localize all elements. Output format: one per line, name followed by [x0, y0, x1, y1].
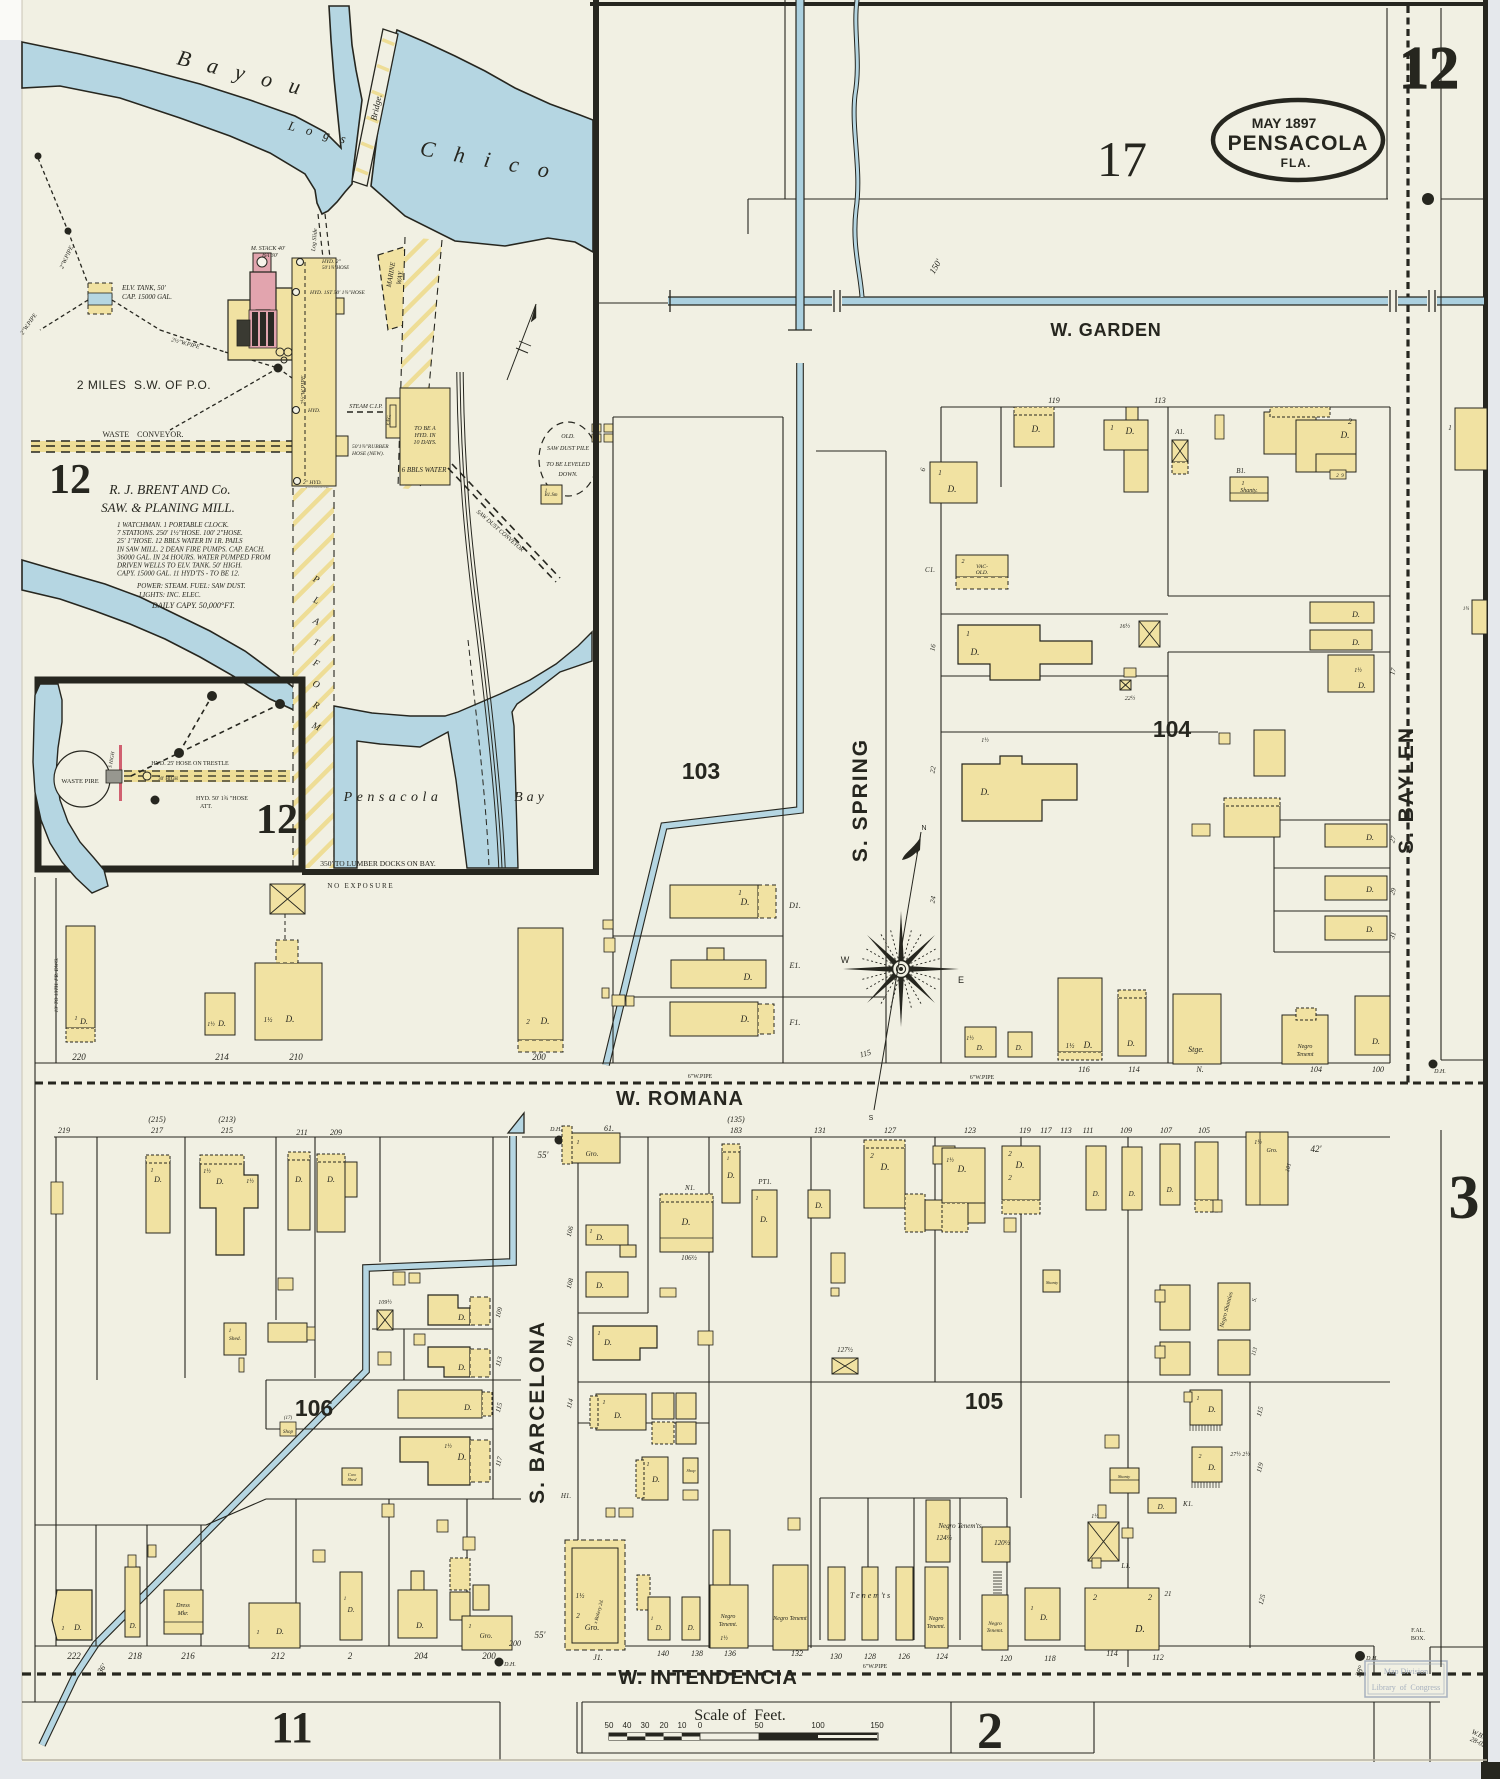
svg-text:1: 1 — [756, 1196, 759, 1202]
svg-text:204: 204 — [414, 1651, 428, 1661]
svg-text:50: 50 — [755, 1721, 764, 1730]
svg-text:200: 200 — [532, 1052, 546, 1062]
svg-text:1½: 1½ — [264, 1016, 274, 1024]
svg-text:2: 2 — [526, 1018, 530, 1026]
svg-text:219: 219 — [58, 1126, 70, 1135]
svg-text:105: 105 — [1198, 1126, 1210, 1135]
svg-text:120½: 120½ — [994, 1539, 1011, 1547]
svg-text:D.: D. — [726, 1171, 735, 1180]
svg-text:D.: D. — [1365, 885, 1374, 894]
svg-text:1: 1 — [590, 1229, 593, 1235]
svg-text:124½: 124½ — [936, 1534, 953, 1542]
svg-text:1: 1 — [738, 889, 742, 897]
svg-text:1: 1 — [1110, 424, 1114, 432]
svg-text:120: 120 — [1000, 1654, 1012, 1663]
svg-text:D.: D. — [1015, 1044, 1023, 1052]
svg-text:Gro.: Gro. — [586, 1150, 599, 1158]
svg-text:6"W.PIPE: 6"W.PIPE — [688, 1074, 713, 1080]
svg-text:36000 GAL. IN 24 HOURS. WATER: 36000 GAL. IN 24 HOURS. WATER PUMPED FRO… — [116, 553, 272, 561]
svg-text:D.: D. — [1039, 1613, 1048, 1622]
svg-text:D.: D. — [129, 1622, 137, 1630]
svg-text:E1.: E1. — [789, 961, 801, 970]
svg-text:R. J. BRENT AND Co.: R. J. BRENT AND Co. — [108, 482, 230, 497]
svg-text:W. ROMANA: W. ROMANA — [616, 1088, 744, 1110]
svg-text:1 WATCHMAN. 1 PORTABLE CLOCK.: 1 WATCHMAN. 1 PORTABLE CLOCK. — [117, 521, 229, 529]
svg-text:D.: D. — [740, 1014, 750, 1024]
svg-text:D.: D. — [1083, 1040, 1093, 1050]
svg-text:D.: D. — [1351, 638, 1360, 647]
svg-text:S: S — [869, 1115, 874, 1122]
svg-text:MAY 1897: MAY 1897 — [1252, 115, 1317, 131]
svg-text:61.: 61. — [604, 1124, 614, 1133]
svg-text:Map Division: Map Division — [1384, 1667, 1428, 1676]
svg-text:183: 183 — [730, 1126, 742, 1135]
svg-text:F1.: F1. — [789, 1018, 801, 1027]
svg-text:D.: D. — [613, 1411, 622, 1420]
svg-text:1: 1 — [1242, 481, 1245, 487]
svg-text:150: 150 — [870, 1721, 884, 1730]
svg-text:Shop: Shop — [283, 1430, 294, 1435]
svg-text:W: W — [841, 955, 850, 965]
svg-text:200: 200 — [482, 1651, 496, 1661]
svg-text:1: 1 — [229, 1329, 232, 1334]
svg-text:1½: 1½ — [207, 1021, 215, 1028]
svg-text:K1.: K1. — [1182, 1500, 1193, 1508]
svg-text:350′ TO LUMBER DOCKS ON BAY.: 350′ TO LUMBER DOCKS ON BAY. — [320, 859, 436, 868]
svg-text:130: 130 — [830, 1652, 842, 1661]
svg-text:D.: D. — [285, 1014, 295, 1024]
svg-text:DRIVEN WELLS TO ELV. TANK. 50′: DRIVEN WELLS TO ELV. TANK. 50′ HIGH. — [116, 562, 242, 570]
svg-text:2: 2 — [1008, 1174, 1012, 1182]
svg-text:D.: D. — [1365, 925, 1374, 934]
svg-text:220: 220 — [72, 1052, 86, 1062]
svg-text:118: 118 — [1044, 1654, 1055, 1663]
svg-text:SAW DUST PILE: SAW DUST PILE — [547, 446, 589, 452]
svg-text:218: 218 — [128, 1651, 142, 1661]
svg-text:2: 2 — [1199, 1454, 1202, 1460]
svg-text:D.H.: D.H. — [1365, 1656, 1378, 1662]
svg-text:BOX.: BOX. — [1411, 1636, 1426, 1642]
svg-text:H1.: H1. — [560, 1492, 572, 1500]
svg-text:13' TO 13TH. FR. DWG.: 13' TO 13TH. FR. DWG. — [54, 957, 60, 1012]
svg-text:1: 1 — [647, 1462, 650, 1468]
svg-text:10: 10 — [678, 1721, 687, 1730]
svg-text:106½: 106½ — [681, 1254, 698, 1262]
svg-text:D.: D. — [687, 1624, 695, 1632]
svg-text:6 BBLS WATER: 6 BBLS WATER — [402, 466, 447, 474]
svg-text:1: 1 — [938, 469, 942, 477]
svg-text:S. BAYLEN: S. BAYLEN — [1395, 726, 1418, 854]
svg-text:PT1.: PT1. — [757, 1178, 772, 1186]
svg-text:Mkr.: Mkr. — [177, 1611, 189, 1617]
svg-text:L1.: L1. — [1120, 1562, 1130, 1570]
svg-text:2: 2 — [1093, 1593, 1097, 1602]
svg-text:HOSE (NEW).: HOSE (NEW). — [351, 450, 384, 457]
svg-text:55': 55' — [538, 1150, 550, 1160]
svg-text:109½: 109½ — [378, 1299, 392, 1306]
svg-text:1½: 1½ — [1354, 667, 1362, 674]
svg-text:10 DAYS.: 10 DAYS. — [413, 440, 436, 446]
svg-text:27½ 2½: 27½ 2½ — [1230, 1451, 1250, 1458]
svg-text:217: 217 — [151, 1126, 164, 1135]
svg-text:DOWN.: DOWN. — [557, 472, 577, 478]
svg-text:Negro: Negro — [1297, 1044, 1313, 1050]
svg-text:D.: D. — [595, 1233, 604, 1242]
svg-text:55': 55' — [535, 1630, 547, 1640]
svg-text:D.: D. — [463, 1403, 472, 1412]
svg-text:Negro Tenem′ts: Negro Tenem′ts — [937, 1522, 981, 1530]
svg-text:109: 109 — [1120, 1126, 1132, 1135]
svg-text:1: 1 — [469, 1624, 472, 1630]
svg-text:3: 3 — [1449, 1164, 1480, 1232]
svg-text:2: 2 — [977, 1703, 1003, 1760]
svg-text:2" HYD.: 2" HYD. — [303, 480, 322, 486]
svg-text:17: 17 — [1097, 131, 1147, 187]
svg-text:SAW. & PLANING MILL.: SAW. & PLANING MILL. — [101, 500, 235, 515]
svg-text:104: 104 — [1153, 716, 1192, 742]
svg-text:1: 1 — [603, 1400, 606, 1406]
svg-text:TO BE A: TO BE A — [414, 426, 436, 432]
svg-text:Tenemt.: Tenemt. — [927, 1624, 946, 1630]
svg-text:WASTE CONVEYOR.: WASTE CONVEYOR. — [102, 430, 183, 439]
svg-text:Shed: Shed — [348, 1477, 357, 1482]
svg-text:1½: 1½ — [981, 737, 989, 744]
svg-text:D.: D. — [957, 1164, 967, 1174]
svg-text:210: 210 — [289, 1052, 303, 1062]
svg-text:132: 132 — [791, 1649, 803, 1658]
svg-text:116: 116 — [1078, 1065, 1089, 1074]
svg-text:1½: 1½ — [1254, 1139, 1262, 1146]
svg-text:N O E X P O S U R E: N O E X P O S U R E — [327, 882, 392, 890]
svg-text:111: 111 — [1083, 1126, 1094, 1135]
svg-text:1: 1 — [651, 1617, 654, 1622]
svg-text:Bay: Bay — [514, 790, 548, 805]
svg-text:D.: D. — [947, 484, 957, 494]
svg-text:214: 214 — [215, 1052, 229, 1062]
svg-text:D.: D. — [1125, 426, 1135, 436]
svg-text:1: 1 — [545, 489, 548, 494]
svg-text:D.: D. — [1128, 1190, 1136, 1198]
svg-text:126: 126 — [898, 1652, 910, 1661]
svg-text:42': 42' — [1311, 1144, 1323, 1154]
svg-text:100: 100 — [1372, 1065, 1384, 1074]
svg-text:1½: 1½ — [1066, 1042, 1076, 1050]
svg-text:1½: 1½ — [720, 1635, 728, 1642]
svg-text:11: 11 — [271, 1703, 313, 1752]
svg-text:2: 2 — [1148, 1593, 1152, 1602]
svg-text:138: 138 — [691, 1649, 703, 1658]
svg-text:D.: D. — [759, 1215, 768, 1224]
svg-text:HYD. IN: HYD. IN — [413, 433, 436, 439]
svg-text:20: 20 — [660, 1721, 669, 1730]
svg-text:136: 136 — [724, 1649, 736, 1658]
svg-text:D.H.: D.H. — [503, 1662, 516, 1668]
svg-text:Negro: Negro — [987, 1621, 1002, 1627]
svg-text:7 STATIONS. 250′ 1½"HOSE. 100′: 7 STATIONS. 250′ 1½"HOSE. 100′ 2"HOSE. — [117, 529, 243, 537]
svg-text:1½: 1½ — [444, 1443, 452, 1450]
svg-text:D.: D. — [1126, 1039, 1135, 1048]
svg-text:Stge.: Stge. — [1188, 1045, 1204, 1054]
svg-text:W. GARDEN: W. GARDEN — [1050, 320, 1161, 340]
svg-text:50: 50 — [605, 1721, 614, 1730]
svg-text:124: 124 — [936, 1652, 948, 1661]
svg-text:D.: D. — [457, 1363, 466, 1372]
svg-text:D.: D. — [681, 1217, 691, 1227]
svg-text:117: 117 — [1040, 1126, 1052, 1135]
svg-text:104: 104 — [1310, 1065, 1322, 1074]
svg-text:CAPY. 15000 GAL. 11 HYD′TS - T: CAPY. 15000 GAL. 11 HYD′TS - TO BE 12. — [117, 570, 240, 578]
svg-text:Shed.: Shed. — [229, 1336, 241, 1342]
svg-text:Negro Tenemt: Negro Tenemt — [772, 1616, 807, 1622]
svg-text:D.: D. — [415, 1621, 424, 1630]
svg-text:(17): (17) — [284, 1416, 293, 1421]
svg-text:LIGHTS: INC. ELEC.: LIGHTS: INC. ELEC. — [138, 591, 201, 599]
svg-text:112: 112 — [1152, 1653, 1163, 1662]
svg-text:D.: D. — [976, 1044, 984, 1052]
svg-text:Library of Congress: Library of Congress — [1372, 1683, 1440, 1692]
svg-text:D.: D. — [275, 1627, 284, 1636]
svg-text:N: N — [921, 825, 926, 832]
svg-text:127½: 127½ — [837, 1346, 854, 1354]
svg-text:Tenemt: Tenemt — [1296, 1052, 1313, 1058]
svg-text:STEAM C.I.P.: STEAM C.I.P. — [349, 404, 383, 410]
svg-text:HYD.: HYD. — [307, 408, 320, 414]
svg-text:Shanty: Shanty — [1118, 1474, 1130, 1479]
svg-text:1½: 1½ — [1091, 1513, 1099, 1520]
svg-text:50′1¾"HOSE: 50′1¾"HOSE — [322, 266, 349, 271]
svg-text:30: 30 — [641, 1721, 650, 1730]
svg-text:200: 200 — [509, 1639, 521, 1648]
svg-text:209: 209 — [330, 1128, 342, 1137]
svg-text:1: 1 — [966, 630, 970, 638]
svg-text:D.: D. — [814, 1201, 823, 1210]
svg-text:FLA.: FLA. — [1281, 156, 1312, 170]
svg-text:Tenemt.: Tenemt. — [986, 1628, 1003, 1634]
svg-text:BA 30′: BA 30′ — [262, 253, 279, 259]
svg-text:215: 215 — [221, 1126, 233, 1135]
svg-text:1½: 1½ — [246, 1178, 254, 1185]
svg-text:D.: D. — [740, 897, 750, 907]
svg-text:128: 128 — [864, 1652, 876, 1661]
svg-text:D.: D. — [457, 1452, 467, 1462]
svg-text:D.: D. — [79, 1017, 88, 1026]
svg-text:M. STACK 40′: M. STACK 40′ — [250, 245, 286, 252]
svg-text:D.: D. — [1092, 1190, 1100, 1198]
svg-text:2: 2 — [962, 559, 965, 565]
svg-text:D.: D. — [1371, 1037, 1380, 1046]
svg-text:D.: D. — [1157, 1503, 1165, 1511]
svg-text:PENSACOLA: PENSACOLA — [1228, 132, 1369, 155]
svg-text:1: 1 — [75, 1016, 78, 1022]
svg-text:D.: D. — [603, 1338, 612, 1347]
svg-text:127: 127 — [884, 1126, 897, 1135]
svg-text:2: 2 — [348, 1651, 353, 1661]
svg-text:Negro: Negro — [720, 1614, 736, 1620]
svg-text:ATT.: ATT. — [200, 804, 213, 810]
svg-text:Tenemt.: Tenemt. — [719, 1622, 738, 1628]
svg-text:123: 123 — [964, 1126, 976, 1135]
svg-text:D.: D. — [73, 1623, 82, 1632]
svg-text:D.: D. — [1166, 1186, 1174, 1194]
svg-text:D1.: D1. — [788, 901, 801, 910]
svg-text:22½: 22½ — [1125, 695, 1136, 702]
svg-text:N.: N. — [1195, 1065, 1203, 1074]
svg-text:D.H.: D.H. — [549, 1127, 562, 1133]
svg-text:114: 114 — [1106, 1649, 1117, 1658]
svg-text:D.: D. — [1357, 681, 1366, 690]
svg-text:2: 2 — [870, 1152, 874, 1160]
svg-text:S. BARCELONA: S. BARCELONA — [526, 1320, 549, 1504]
svg-text:D.: D. — [1351, 610, 1360, 619]
svg-text:131: 131 — [814, 1126, 826, 1135]
svg-text:2: 2 — [1348, 417, 1352, 426]
svg-text:ELV. TANK, 50′: ELV. TANK, 50′ — [121, 284, 166, 292]
svg-text:25′ 1"HOSE. 12 BBLS WATER IN 1: 25′ 1"HOSE. 12 BBLS WATER IN 1R. PAILS — [117, 537, 243, 545]
svg-text:D.: D. — [655, 1624, 663, 1632]
svg-text:12: 12 — [256, 797, 298, 843]
svg-text:1½: 1½ — [203, 1168, 211, 1175]
svg-text:D.: D. — [326, 1175, 335, 1184]
svg-text:Shanty: Shanty — [1046, 1280, 1058, 1285]
svg-text:140: 140 — [657, 1649, 669, 1658]
svg-text:HYD. 50′ 1¾ "HOSE: HYD. 50′ 1¾ "HOSE — [196, 795, 248, 802]
svg-text:TO BE LEVELED: TO BE LEVELED — [546, 462, 590, 468]
svg-text:POWER: STEAM. FUEL: SAW DUST.: POWER: STEAM. FUEL: SAW DUST. — [136, 582, 246, 590]
svg-text:1½: 1½ — [966, 1035, 974, 1042]
svg-text:1: 1 — [598, 1331, 601, 1337]
svg-text:50′1¾"RUBBER: 50′1¾"RUBBER — [352, 444, 389, 450]
svg-text:0: 0 — [698, 1721, 703, 1730]
svg-text:113: 113 — [1154, 396, 1165, 405]
svg-text:2: 2 — [1008, 1150, 1012, 1158]
svg-text:D.: D. — [217, 1019, 226, 1028]
svg-text:WASTE PIRE: WASTE PIRE — [61, 778, 98, 785]
svg-text:D.: D. — [1134, 1624, 1145, 1635]
svg-text:C1.: C1. — [925, 566, 935, 574]
svg-text:107: 107 — [1160, 1126, 1173, 1135]
svg-text:OLD.: OLD. — [561, 434, 575, 440]
svg-text:103: 103 — [682, 758, 720, 784]
svg-text:1: 1 — [577, 1140, 580, 1146]
svg-text:D.: D. — [1031, 424, 1041, 434]
svg-text:Shanty.: Shanty. — [1240, 488, 1258, 494]
svg-text:Scale of Feet.: Scale of Feet. — [694, 1707, 786, 1724]
svg-text:W. INTENDENCIA: W. INTENDENCIA — [618, 1667, 798, 1689]
svg-text:1½: 1½ — [946, 1157, 954, 1164]
svg-text:HYD. 1ST 50′ 1¾"HOSE: HYD. 1ST 50′ 1¾"HOSE — [309, 290, 366, 296]
svg-text:2½"W.PIPE: 2½"W.PIPE — [300, 375, 307, 404]
svg-text:D.: D. — [540, 1016, 550, 1026]
svg-text:6"W.PIPE: 6"W.PIPE — [970, 1075, 995, 1081]
svg-text:216: 216 — [181, 1651, 195, 1661]
svg-text:B1.: B1. — [1236, 467, 1246, 475]
svg-text:30′ HIGH: 30′ HIGH — [158, 777, 178, 782]
svg-text:1: 1 — [151, 1168, 154, 1174]
svg-text:114: 114 — [1128, 1065, 1139, 1074]
svg-text:D.: D. — [651, 1475, 660, 1484]
svg-text:113: 113 — [1060, 1126, 1071, 1135]
svg-text:Shop: Shop — [687, 1468, 697, 1473]
svg-text:2: 2 — [576, 1612, 580, 1620]
svg-text:100: 100 — [811, 1721, 825, 1730]
svg-text:HYD. 2": HYD. 2" — [321, 259, 342, 265]
svg-text:A1.: A1. — [1174, 428, 1185, 436]
svg-text:D.: D. — [1365, 833, 1374, 842]
svg-text:CAP. 15000 GAL.: CAP. 15000 GAL. — [122, 293, 172, 301]
svg-text:D.: D. — [1207, 1463, 1216, 1472]
svg-text:21: 21 — [1165, 1590, 1172, 1598]
svg-text:119: 119 — [1048, 396, 1059, 405]
svg-text:D.: D. — [970, 647, 980, 657]
svg-text:(215): (215) — [148, 1115, 166, 1124]
svg-text:(135): (135) — [727, 1115, 745, 1124]
svg-text:105: 105 — [965, 1388, 1004, 1414]
svg-text:D.: D. — [294, 1175, 303, 1184]
svg-text:Dress: Dress — [175, 1603, 190, 1609]
svg-text:1¾: 1¾ — [1463, 607, 1470, 612]
svg-text:D.: D. — [153, 1175, 162, 1184]
svg-text:S. SPRING: S. SPRING — [849, 738, 872, 862]
svg-text:D.: D. — [457, 1313, 466, 1322]
svg-text:Negro: Negro — [928, 1616, 944, 1622]
svg-text:F.AL.: F.AL. — [1411, 1628, 1425, 1634]
svg-text:1: 1 — [62, 1626, 65, 1632]
svg-text:E: E — [958, 975, 964, 985]
svg-text:D.: D. — [215, 1177, 224, 1186]
svg-text:6"W.PIPE: 6"W.PIPE — [863, 1664, 888, 1670]
svg-text:D.: D. — [743, 972, 753, 982]
svg-text:T e n e m ′t s: T e n e m ′t s — [850, 1591, 890, 1600]
svg-text:N1.: N1. — [684, 1184, 695, 1192]
svg-text:HYD. 25' HOSE ON TRESTLE: HYD. 25' HOSE ON TRESTLE — [151, 761, 229, 767]
svg-text:D.: D. — [347, 1606, 355, 1614]
svg-text:12: 12 — [49, 457, 91, 503]
svg-text:1: 1 — [257, 1630, 260, 1636]
svg-text:IN SAW MILL. 2 DEAN FIRE PUMPS: IN SAW MILL. 2 DEAN FIRE PUMPS. CAP. EAC… — [116, 545, 265, 553]
svg-text:Gro.: Gro. — [480, 1632, 493, 1640]
svg-text:1: 1 — [727, 1157, 730, 1162]
svg-text:OLD.: OLD. — [976, 570, 988, 576]
svg-text:D.: D. — [1207, 1405, 1216, 1414]
svg-text:119: 119 — [1019, 1126, 1030, 1135]
svg-text:D.: D. — [1340, 430, 1350, 440]
svg-text:D.: D. — [880, 1162, 890, 1172]
svg-text:(213): (213) — [218, 1115, 236, 1124]
svg-text:222: 222 — [67, 1651, 81, 1661]
svg-text:106: 106 — [295, 1395, 333, 1421]
svg-text:1: 1 — [344, 1597, 347, 1602]
svg-text:1: 1 — [1197, 1396, 1200, 1402]
svg-text:DAILY CAPY. 50,000°FT.: DAILY CAPY. 50,000°FT. — [151, 601, 235, 610]
svg-text:J1.: J1. — [593, 1653, 603, 1662]
svg-text:1: 1 — [1031, 1606, 1034, 1612]
svg-text:D.: D. — [1015, 1160, 1025, 1170]
svg-text:1: 1 — [1448, 424, 1452, 432]
svg-text:Gro.: Gro. — [1267, 1148, 1278, 1154]
svg-text:1½: 1½ — [576, 1592, 586, 1600]
svg-text:D.: D. — [980, 787, 990, 797]
svg-text:Pensacola: Pensacola — [343, 790, 443, 805]
svg-text:211: 211 — [296, 1128, 307, 1137]
svg-text:2 MILES S.W. OF P.O.: 2 MILES S.W. OF P.O. — [77, 378, 211, 392]
svg-text:40: 40 — [623, 1721, 632, 1730]
svg-text:D.H.: D.H. — [1433, 1069, 1446, 1075]
svg-text:D.: D. — [595, 1281, 604, 1290]
svg-text:212: 212 — [271, 1651, 285, 1661]
svg-text:2 9: 2 9 — [1336, 474, 1344, 479]
svg-text:16½: 16½ — [1120, 623, 1131, 630]
